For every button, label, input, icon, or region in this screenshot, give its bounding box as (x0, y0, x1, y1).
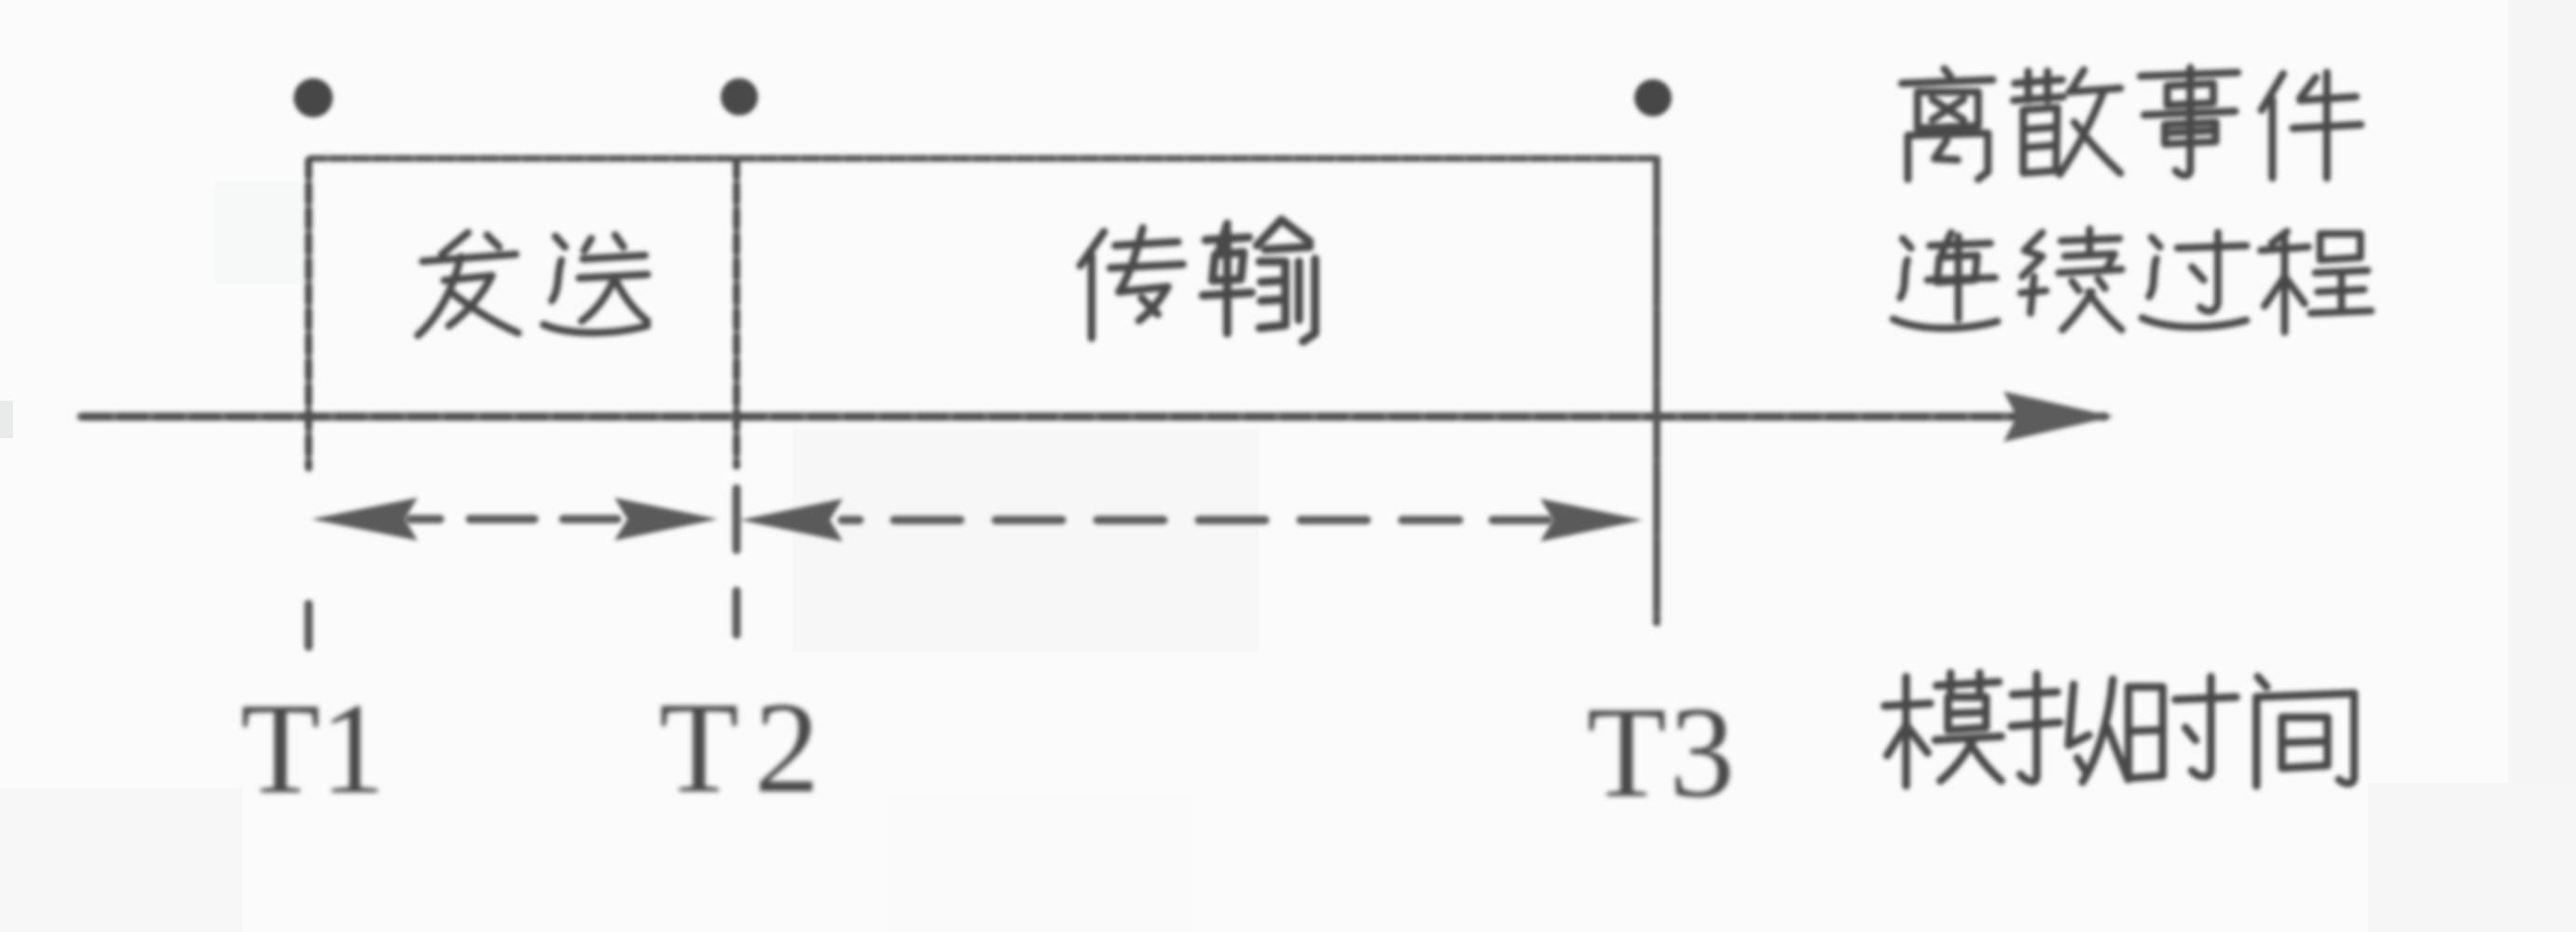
svg-text:T1: T1 (241, 677, 386, 821)
svg-text:T3: T3 (1587, 680, 1738, 825)
